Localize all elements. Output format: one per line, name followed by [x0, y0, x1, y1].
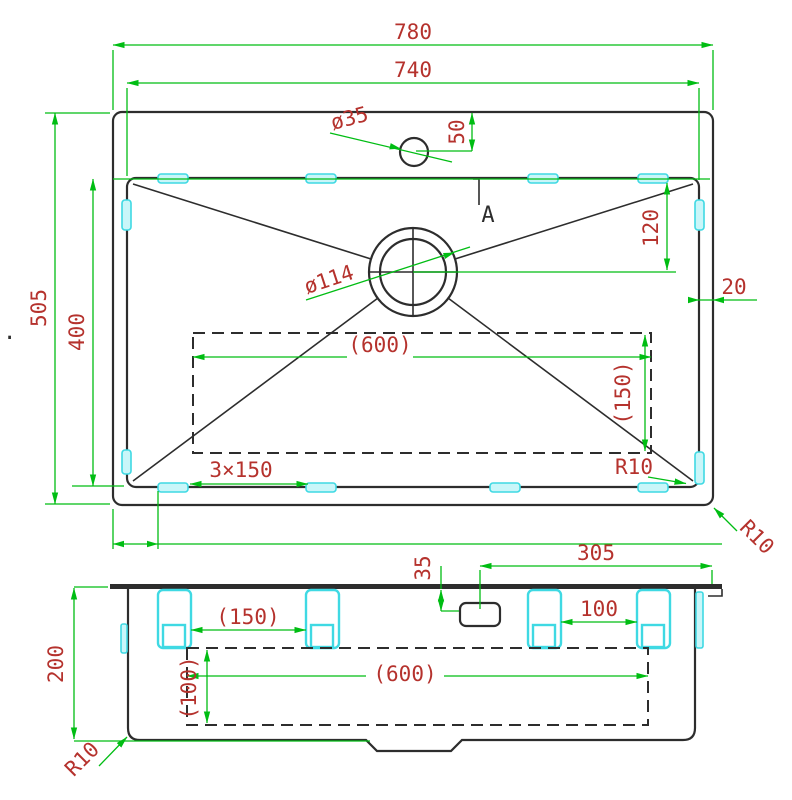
dim-label-740: 740 — [394, 58, 432, 82]
dim-label-400: 400 — [65, 313, 89, 351]
dim-label-cutout-width-b: (600) — [373, 662, 436, 686]
template-cutout — [193, 333, 651, 453]
dim-label-120: 120 — [639, 209, 663, 247]
mounting-clip — [122, 200, 131, 230]
dim-label-cutout-width: (600) — [348, 333, 411, 357]
dim-label-cutout-height: (100) — [177, 656, 201, 719]
dim-label-50: 50 — [445, 119, 469, 144]
dim-arrow — [113, 541, 124, 547]
dim-label-cutout-depth: (150) — [611, 361, 635, 424]
dim-label-outer-radius: R10 — [735, 515, 779, 559]
dim-label-780: 780 — [394, 20, 432, 44]
dim-arrow — [688, 297, 699, 303]
dim-label-corner-radius: R10 — [60, 737, 104, 781]
mounting-clip — [695, 452, 704, 484]
template-cutout — [187, 648, 648, 725]
faucet-hole — [400, 138, 428, 166]
dim-label-inner-radius: R10 — [615, 455, 653, 479]
dim-label-20: 20 — [721, 275, 746, 299]
dim-label-305: 305 — [577, 541, 615, 565]
mounting-clip-foot — [533, 625, 555, 647]
rim-lip — [708, 589, 722, 596]
section-mark-label: A — [481, 203, 494, 228]
dim-label-clip-pitch: 3×150 — [209, 458, 272, 482]
top-view: A 780 740 505 400 50 ø35 120 — [27, 20, 779, 559]
dim-label-200: 200 — [44, 645, 68, 683]
front-view: 200 R10 35 305 100 (150) (600) (100) — [44, 541, 722, 781]
mounting-clip-foot — [642, 625, 664, 647]
dim-arrow — [147, 541, 158, 547]
dim-label-clip-gap-left: (150) — [216, 605, 279, 629]
mounting-clip — [696, 592, 703, 648]
dim-label-505: 505 — [27, 289, 51, 327]
mounting-clip — [122, 450, 131, 474]
mounting-clip — [306, 483, 336, 492]
drawing-canvas: A 780 740 505 400 50 ø35 120 — [0, 0, 792, 800]
bowl-slope-line — [133, 184, 371, 259]
mounting-clip — [638, 483, 668, 492]
mounting-clip-foot — [311, 625, 333, 647]
dim-label-faucet-dia: ø35 — [328, 102, 371, 135]
mounting-clip — [695, 200, 704, 230]
rim-flange — [110, 584, 722, 589]
leader-line — [714, 508, 737, 531]
mounting-clip — [490, 483, 520, 492]
dim-label-35: 35 — [411, 555, 435, 580]
mounting-clip — [158, 483, 188, 492]
sink-drawing: A 780 740 505 400 50 ø35 120 — [0, 0, 792, 800]
mounting-clip-foot — [163, 625, 185, 647]
stray-dot: . — [3, 320, 16, 345]
mounting-clip — [121, 624, 127, 653]
section-mark-line — [473, 179, 479, 205]
dim-label-100: 100 — [580, 597, 618, 621]
